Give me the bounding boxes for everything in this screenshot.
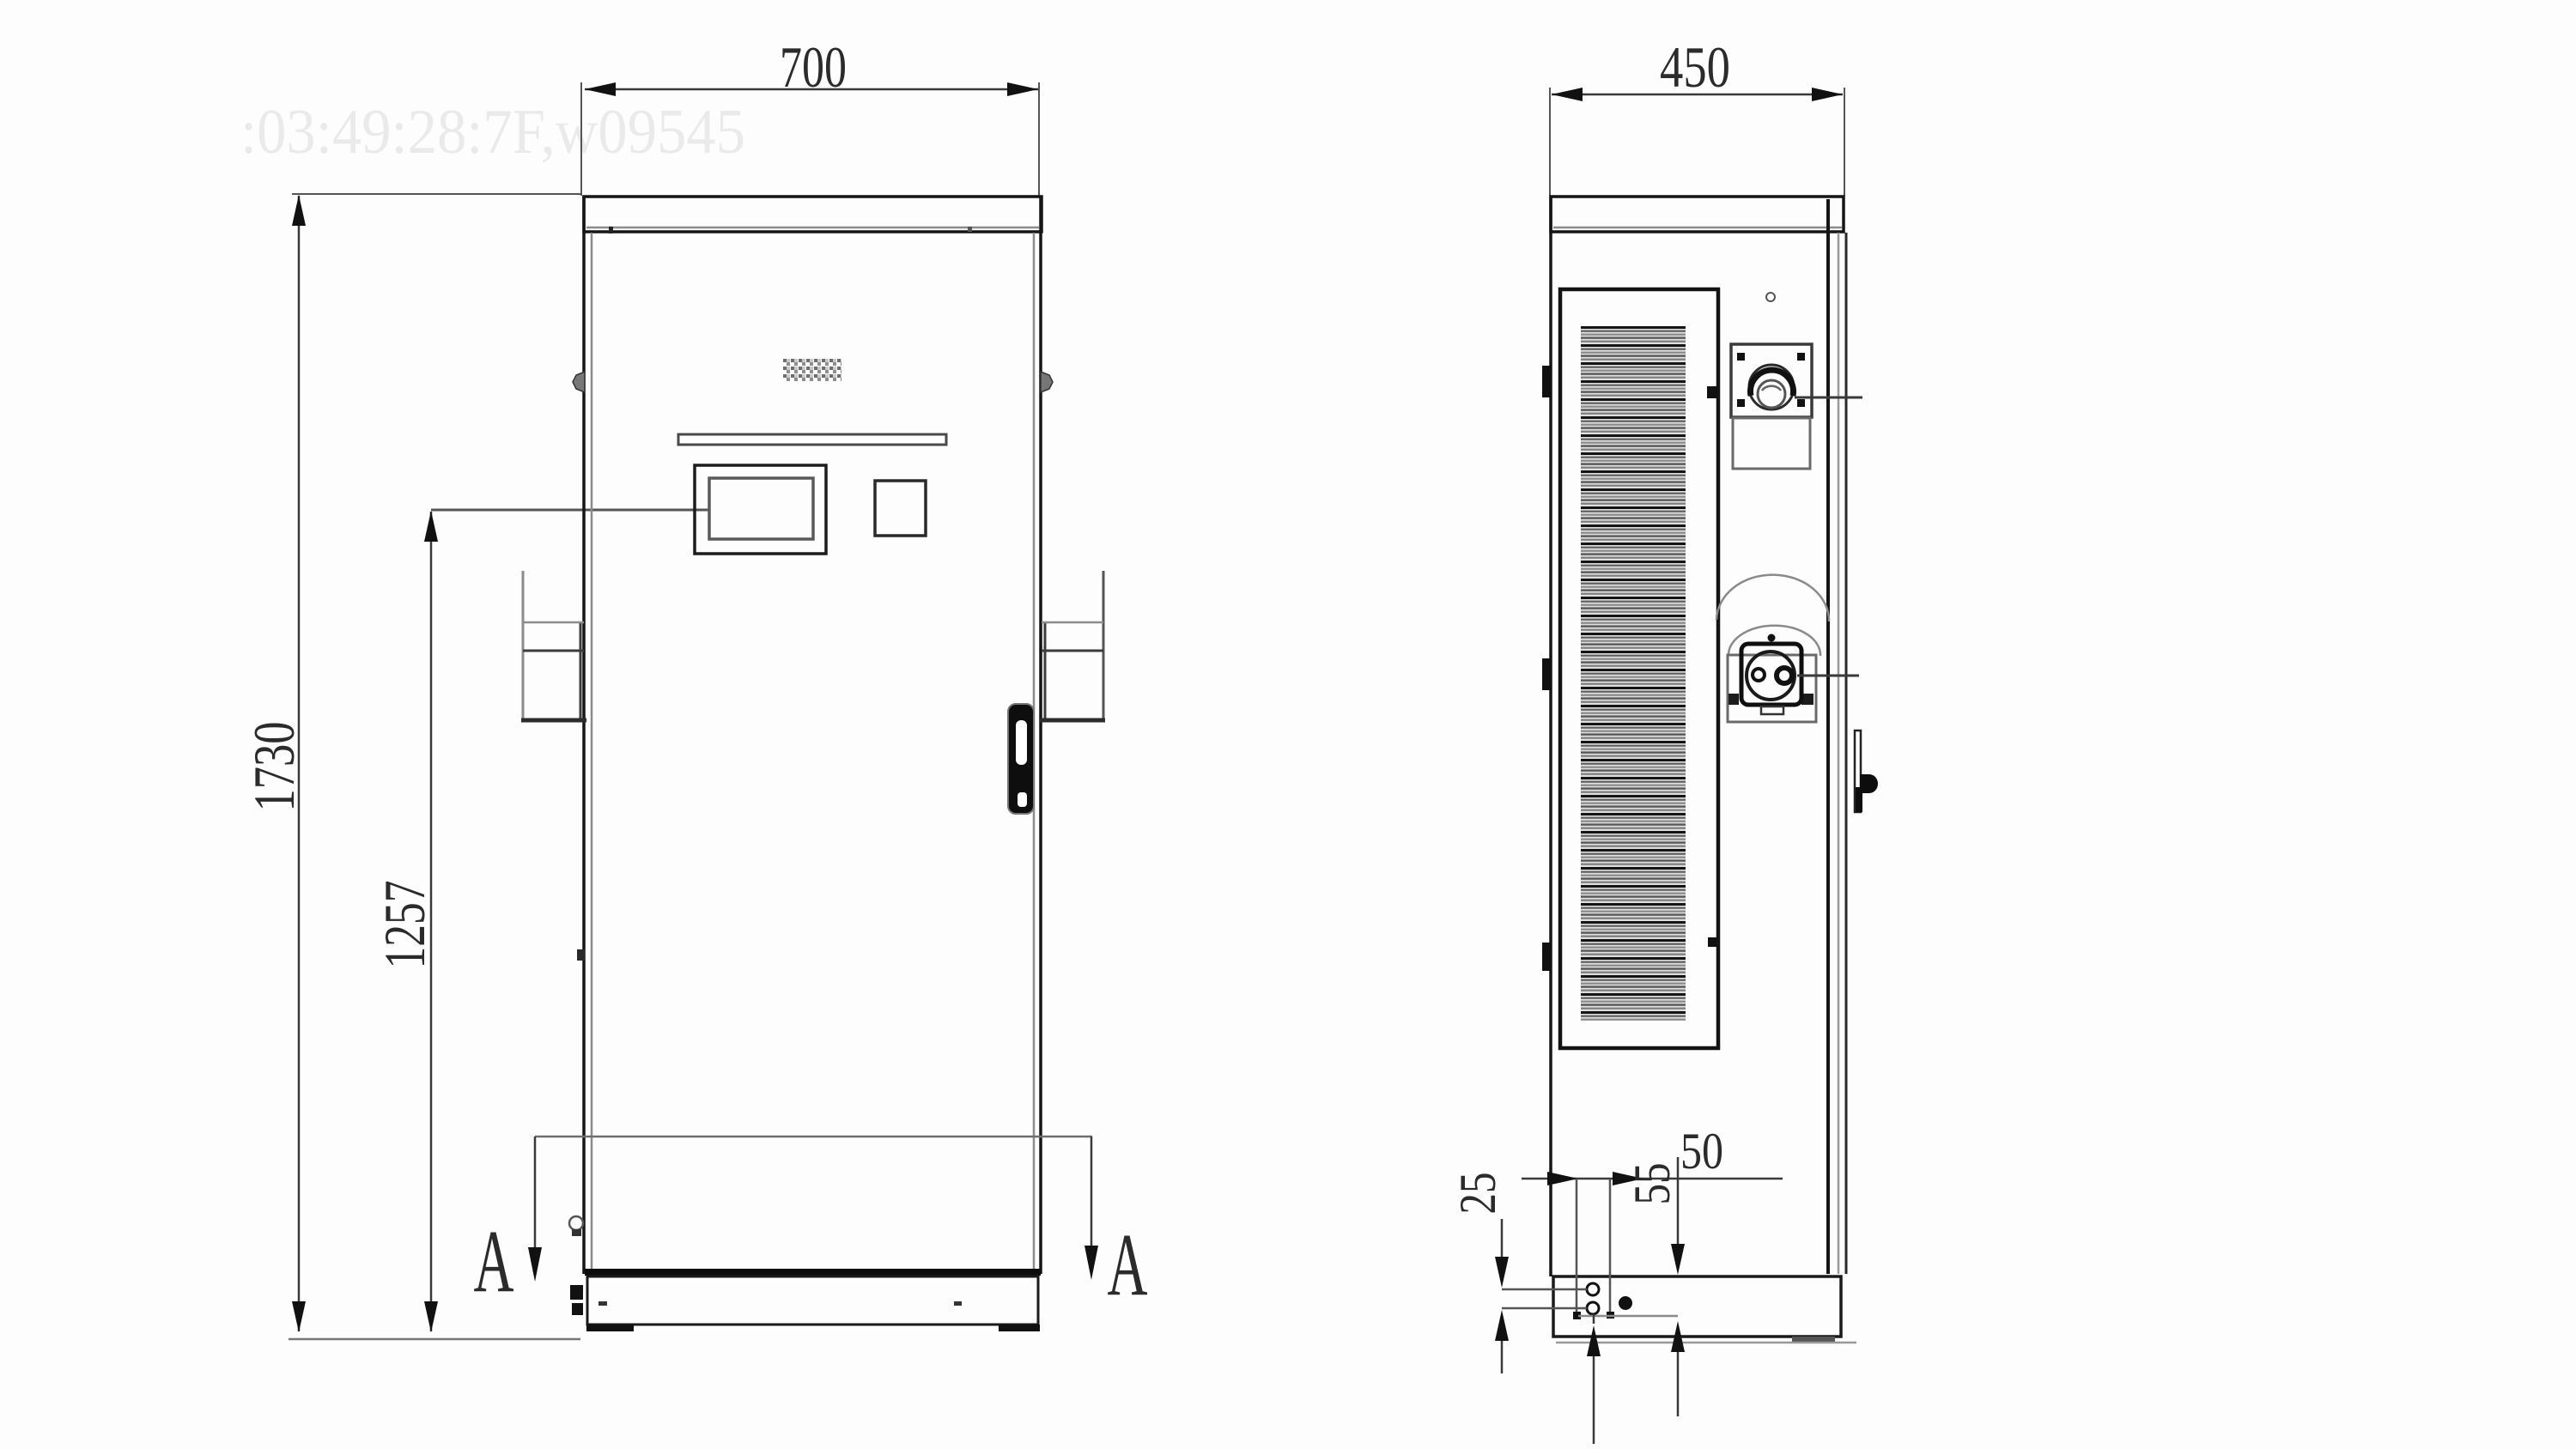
svg-text:450: 450 bbox=[1660, 34, 1730, 100]
svg-text:1257: 1257 bbox=[372, 881, 437, 969]
svg-text:1730: 1730 bbox=[241, 722, 307, 812]
svg-text:55: 55 bbox=[1624, 1163, 1680, 1205]
svg-text:A: A bbox=[474, 1212, 514, 1311]
svg-text:25: 25 bbox=[1449, 1173, 1506, 1215]
svg-text:A: A bbox=[1108, 1216, 1148, 1314]
svg-text::03:49:28:7F,w09545: :03:49:28:7F,w09545 bbox=[240, 97, 745, 167]
svg-text:50: 50 bbox=[1680, 1123, 1723, 1179]
